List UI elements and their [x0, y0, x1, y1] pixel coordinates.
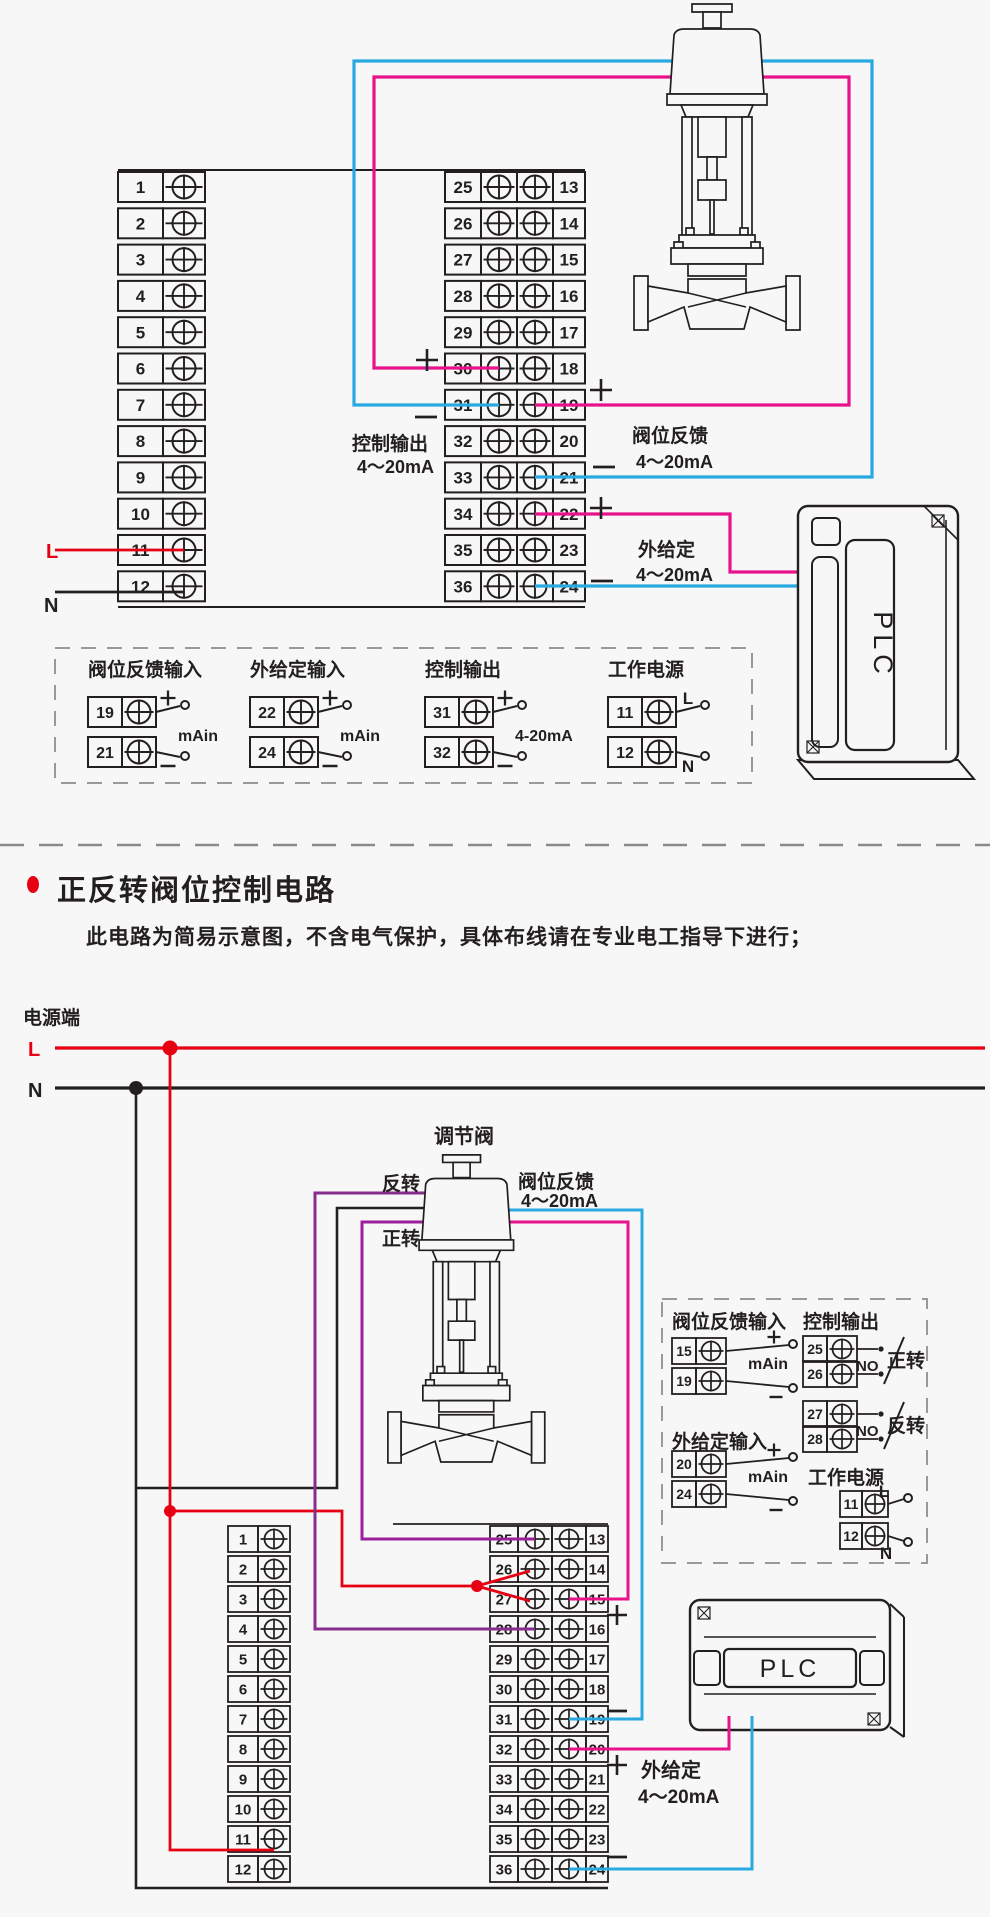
screw-terminal: [518, 1766, 552, 1792]
terminal-number: 26: [454, 214, 473, 233]
terminal-number-cell: 28: [803, 1426, 827, 1452]
terminal-number: 15: [676, 1343, 692, 1359]
terminal-number: 11: [617, 705, 634, 722]
terminal-number-cell: 33: [490, 1766, 518, 1792]
terminal-number-cell: 17: [553, 317, 585, 347]
terminal-number: 11: [235, 1831, 251, 1848]
screw-terminal: [552, 1766, 586, 1792]
label-neutral: N: [44, 595, 58, 617]
terminal-number-cell: 10: [118, 499, 163, 529]
screw-terminal: [517, 208, 553, 238]
plc-label: PLC: [868, 611, 898, 679]
wire: [726, 1458, 789, 1464]
screw-cross: [555, 1679, 584, 1700]
screw-terminal: [552, 1676, 586, 1702]
label-reverse: 反转: [382, 1172, 420, 1195]
detail-wire: [493, 752, 517, 757]
terminal-number-cell: 27: [803, 1401, 827, 1427]
detail-direction-label: 反转: [887, 1414, 925, 1437]
open-terminal-icon: [789, 1340, 797, 1348]
detail-sign: N: [682, 757, 694, 776]
screw-terminal: [459, 697, 493, 727]
screw-cross: [521, 1559, 550, 1580]
terminal-number: 32: [454, 432, 473, 451]
screw-terminal: [642, 697, 676, 727]
screw-cross: [699, 1484, 724, 1505]
terminal-number-cell: 20: [672, 1451, 696, 1477]
screw-cross: [555, 1619, 584, 1640]
panel-outline: [118, 170, 585, 607]
detail-sign: L: [879, 1482, 889, 1501]
terminal-number: 32: [433, 745, 451, 762]
terminal-number: 21: [96, 745, 114, 762]
terminal-number-cell: 34: [490, 1796, 518, 1822]
terminal-number-cell: 15: [553, 245, 585, 275]
terminal-number-cell: 19: [88, 697, 122, 727]
screw-cross: [166, 320, 203, 345]
terminal-number-cell: 30: [490, 1676, 518, 1702]
d2-wires: [55, 1041, 985, 1889]
screw-terminal: [258, 1766, 290, 1792]
terminal-number: 12: [616, 745, 634, 762]
screw-cross: [261, 1679, 288, 1700]
terminal-number: 32: [496, 1741, 513, 1758]
screw-cross: [261, 1769, 288, 1790]
screw-cross: [287, 740, 316, 765]
terminal-number-cell: 11: [608, 697, 642, 727]
terminal-number: 16: [560, 287, 579, 306]
detail-sign: L: [683, 689, 693, 708]
terminal-number-cell: 3: [228, 1586, 258, 1612]
screw-cross: [830, 1404, 855, 1425]
terminal-number: 27: [454, 251, 473, 270]
terminal-number: 10: [131, 505, 150, 524]
terminal-number: 20: [560, 432, 579, 451]
open-terminal-icon: [181, 752, 189, 760]
screw-terminal: [258, 1556, 290, 1582]
screw-cross: [555, 1829, 584, 1850]
terminal-number-cell: 20: [553, 426, 585, 456]
terminal-number-cell: 10: [228, 1796, 258, 1822]
terminal-number-cell: 32: [425, 737, 459, 767]
terminal-number: 1: [136, 178, 145, 197]
terminal-number-cell: 26: [803, 1361, 827, 1387]
terminal-number: 17: [560, 323, 579, 342]
screw-terminal: [518, 1826, 552, 1852]
screw-cross: [484, 465, 515, 490]
terminal-number: 29: [454, 323, 473, 342]
screw-terminal: [163, 317, 205, 347]
terminal-number: 12: [843, 1528, 859, 1544]
terminal-number: 9: [239, 1771, 247, 1788]
screw-cross: [484, 320, 515, 345]
plus-sign: [161, 691, 176, 706]
screw-cross: [484, 538, 515, 563]
terminal-number: 17: [589, 1651, 606, 1668]
screw-terminal: [163, 281, 205, 311]
screw-cross: [520, 320, 551, 345]
terminal-number: 4: [239, 1621, 248, 1638]
terminal-block-left: 123456789101112: [118, 172, 205, 601]
terminal-number-cell: 3: [118, 245, 163, 275]
terminal-number-cell: 9: [228, 1766, 258, 1792]
screw-cross: [484, 211, 515, 236]
screw-cross: [521, 1679, 550, 1700]
terminal-number: 4: [136, 287, 146, 306]
terminal-number: 24: [258, 745, 276, 762]
screw-terminal: [163, 462, 205, 492]
screw-cross: [484, 501, 515, 526]
d1-control-valve: [634, 4, 800, 330]
open-terminal-icon: [789, 1384, 797, 1392]
screw-cross: [261, 1589, 288, 1610]
screw-cross: [521, 1829, 550, 1850]
junction-live-branch: [471, 1580, 483, 1592]
detail-mid-label: mAin: [340, 728, 380, 745]
screw-cross: [166, 211, 203, 236]
terminal-number-cell: 12: [608, 737, 642, 767]
screw-cross: [261, 1619, 288, 1640]
terminal-number-cell: 32: [445, 426, 481, 456]
terminal-number: 35: [454, 541, 473, 560]
detail-mid-label: mAin: [748, 1356, 788, 1373]
screw-terminal: [481, 499, 517, 529]
terminal-number-cell: 4: [118, 281, 163, 311]
plc-module: PLC: [690, 1600, 904, 1737]
detail-mid-label: mAin: [178, 728, 218, 745]
terminal-number-cell: 4: [228, 1616, 258, 1642]
screw-terminal: [163, 245, 205, 275]
screw-terminal: [481, 426, 517, 456]
screw-terminal: [517, 317, 553, 347]
terminal-number-cell: 19: [672, 1368, 696, 1394]
screw-terminal: [517, 535, 553, 565]
detail-wire: [156, 706, 180, 712]
terminal-number-cell: 1: [228, 1526, 258, 1552]
terminal-block-middle: 2513261427152816291730183119322033213422…: [445, 172, 585, 601]
terminal-number-cell: 15: [672, 1338, 696, 1364]
label-ext-setpoint: 外给定: [641, 1758, 701, 1782]
plus-sign: [607, 1605, 627, 1625]
screw-cross: [166, 175, 203, 200]
terminal-number: 23: [560, 541, 579, 560]
terminal-number: 25: [454, 178, 473, 197]
screw-cross: [261, 1559, 288, 1580]
screw-cross: [166, 247, 203, 272]
terminal-number: 19: [676, 1373, 692, 1389]
terminal-number: 26: [807, 1366, 823, 1382]
terminal-number: 30: [496, 1681, 513, 1698]
wiring-manual-page: 1234567891011122513261427152816291730183…: [0, 0, 990, 1917]
terminal-number-cell: 26: [445, 208, 481, 238]
screw-cross: [520, 283, 551, 308]
terminal-number: 8: [136, 432, 145, 451]
plc-label: PLC: [760, 1655, 821, 1683]
screw-terminal: [122, 737, 156, 767]
detail-group-title: 外给定输入: [672, 1430, 767, 1453]
screw-terminal: [163, 354, 205, 384]
section-title-block: 正反转阀位控制电路 此电路为简易示意图，不含电气保护，具体布线请在专业电工指导下…: [0, 843, 990, 980]
screw-cross: [520, 175, 551, 200]
terminal-number-cell: 22: [250, 697, 284, 727]
terminal-number-cell: 12: [228, 1856, 258, 1882]
terminal-number: 23: [589, 1831, 606, 1848]
terminal-number: 1: [239, 1531, 247, 1548]
screw-terminal: [696, 1368, 726, 1394]
label-control-range: 4～20mA: [357, 457, 434, 477]
wire: [888, 1536, 904, 1541]
terminal-number: 16: [589, 1621, 606, 1638]
screw-terminal: [258, 1646, 290, 1672]
terminal-number-cell: 2: [118, 208, 163, 238]
plus-sign: [323, 691, 338, 706]
plus-sign: [590, 497, 612, 519]
screw-terminal: [258, 1796, 290, 1822]
detail-group-title: 控制输出: [803, 1310, 879, 1333]
label-feedback-range: 4～20mA: [636, 452, 713, 472]
detail-group-feedback: 阀位反馈输入1519mAin: [672, 1310, 797, 1397]
dashed-divider: [0, 843, 990, 847]
screw-cross: [645, 700, 674, 725]
screw-terminal: [517, 426, 553, 456]
screw-cross: [521, 1799, 550, 1820]
terminal-number-cell: 29: [490, 1646, 518, 1672]
label-control-output: 控制输出: [352, 432, 428, 455]
screw-terminal: [696, 1451, 726, 1477]
terminal-number: 20: [676, 1456, 692, 1472]
contact-dot: [878, 1346, 883, 1351]
label-live: L: [28, 1039, 40, 1061]
detail-mid-label: mAin: [748, 1469, 788, 1486]
terminal-number-cell: 8: [228, 1736, 258, 1762]
screw-cross: [521, 1709, 550, 1730]
label-setpoint-range: 4～20mA: [638, 1787, 720, 1808]
screw-terminal: [258, 1706, 290, 1732]
d1-terminal-blocks: 1234567891011122513261427152816291730183…: [118, 170, 585, 607]
detail-group: 外给定输入2224mAin: [250, 658, 380, 767]
terminal-number: 28: [807, 1431, 823, 1447]
terminal-number-cell: 31: [425, 697, 459, 727]
screw-terminal: [258, 1676, 290, 1702]
label-forward: 正转: [382, 1227, 420, 1250]
section-title-row: 正反转阀位控制电路: [57, 867, 336, 909]
terminal-number-cell: 16: [553, 281, 585, 311]
screw-cross: [261, 1529, 288, 1550]
label-setpoint-range: 4～20mA: [636, 565, 713, 585]
d2-terminal-detail-box: 阀位反馈输入1519mAin外给定输入2024mAin控制输出2526NO正转2…: [662, 1299, 927, 1563]
detail-group-title: 控制输出: [425, 658, 501, 681]
terminal-number: 6: [239, 1681, 247, 1698]
screw-cross: [166, 429, 203, 454]
screw-terminal: [518, 1706, 552, 1732]
screw-terminal: [481, 281, 517, 311]
screw-cross: [521, 1769, 550, 1790]
terminal-number-cell: 21: [88, 737, 122, 767]
screw-cross: [520, 211, 551, 236]
screw-cross: [261, 1739, 288, 1760]
screw-terminal: [163, 172, 205, 202]
detail-direction-label: 正转: [887, 1349, 925, 1372]
terminal-number: 28: [454, 287, 473, 306]
screw-cross: [555, 1529, 584, 1550]
section-title: 正反转阀位控制电路: [57, 875, 336, 907]
screw-cross: [462, 740, 491, 765]
screw-cross: [166, 283, 203, 308]
screw-cross: [484, 247, 515, 272]
detail-no-label: NO: [856, 1423, 879, 1440]
terminal-number-cell: 28: [445, 281, 481, 311]
screw-cross: [699, 1454, 724, 1475]
terminal-number-cell: 36: [490, 1856, 518, 1882]
screw-terminal: [517, 245, 553, 275]
screw-terminal: [696, 1481, 726, 1507]
terminal-number: 34: [496, 1801, 513, 1818]
screw-cross: [521, 1859, 550, 1880]
screw-cross: [261, 1829, 288, 1850]
screw-terminal: [696, 1338, 726, 1364]
terminal-number: 18: [560, 360, 579, 379]
terminal-number-cell: 32: [490, 1736, 518, 1762]
terminal-number: 14: [589, 1561, 606, 1578]
terminal-number-cell: 21: [586, 1766, 608, 1792]
screw-terminal: [827, 1361, 857, 1387]
open-terminal-icon: [343, 752, 351, 760]
junction-neutral-top: [129, 1081, 143, 1095]
screw-terminal: [481, 535, 517, 565]
terminal-number: 12: [131, 577, 150, 596]
d2-labels: 电源端LN调节阀反转正转阀位反馈4～20mA外给定4～20mA: [23, 1006, 720, 1857]
screw-cross: [125, 700, 154, 725]
terminal-number: 13: [589, 1531, 606, 1548]
screw-cross: [166, 574, 203, 599]
screw-terminal: [258, 1736, 290, 1762]
screw-cross: [699, 1371, 724, 1392]
terminal-number-cell: 29: [445, 317, 481, 347]
terminal-number-cell: 18: [553, 354, 585, 384]
terminal-number: 33: [496, 1771, 513, 1788]
plus-sign: [590, 379, 612, 401]
terminal-number-cell: 13: [586, 1526, 608, 1552]
contact-dot: [878, 1436, 883, 1441]
terminal-number-cell: 5: [118, 317, 163, 347]
detail-sign: N: [880, 1544, 892, 1563]
open-terminal-icon: [789, 1453, 797, 1461]
terminal-number: 34: [454, 505, 473, 524]
screw-terminal: [258, 1826, 290, 1852]
screw-cross: [555, 1769, 584, 1790]
screw-cross: [830, 1429, 855, 1450]
plus-sign: [768, 1444, 781, 1457]
label-feedback-range: 4～20mA: [521, 1191, 598, 1211]
terminal-number: 9: [136, 469, 145, 488]
terminal-number-cell: 8: [118, 426, 163, 456]
terminal-number-cell: 23: [586, 1826, 608, 1852]
screw-terminal: [163, 208, 205, 238]
terminal-number-cell: 14: [586, 1556, 608, 1582]
diagram-forward-reverse-wiring: 1234567891011122513261427152816291730183…: [0, 980, 990, 1917]
screw-terminal: [552, 1646, 586, 1672]
screw-terminal: [481, 208, 517, 238]
terminal-number: 13: [560, 178, 579, 197]
screw-terminal: [481, 172, 517, 202]
wire: [726, 1381, 789, 1387]
junction-live-mid: [164, 1505, 176, 1517]
terminal-number: 25: [807, 1341, 823, 1357]
detail-group: 工作电源11L12N: [608, 658, 709, 776]
detail-mid-label: 4-20mA: [515, 728, 573, 745]
screw-cross: [830, 1364, 855, 1385]
screw-cross: [520, 538, 551, 563]
screw-terminal: [552, 1826, 586, 1852]
screw-terminal: [258, 1616, 290, 1642]
wire: [726, 1494, 789, 1500]
terminal-number: 36: [454, 577, 473, 596]
label-power-terminal: 电源端: [23, 1006, 80, 1029]
terminal-number: 29: [496, 1651, 513, 1668]
terminal-number-cell: 12: [840, 1523, 862, 1549]
terminal-number-cell: 24: [672, 1481, 696, 1507]
terminal-number: 7: [239, 1711, 247, 1728]
screw-terminal: [518, 1676, 552, 1702]
terminal-number-cell: 11: [840, 1491, 862, 1517]
screw-cross: [555, 1799, 584, 1820]
bullet-icon: [27, 876, 39, 893]
screw-terminal: [517, 172, 553, 202]
detail-group-title: 工作电源: [808, 1466, 884, 1489]
diagram-single-loop-wiring: 1234567891011122513261427152816291730183…: [0, 0, 990, 843]
detail-group-control: 控制输出2526NO正转2728NO反转: [803, 1310, 925, 1452]
label-neutral: N: [28, 1080, 42, 1102]
terminal-number-cell: 7: [118, 390, 163, 420]
terminal-number-cell: 13: [553, 172, 585, 202]
terminal-number: 35: [496, 1831, 513, 1848]
screw-cross: [484, 175, 515, 200]
detail-group-power: 工作电源1112LN: [808, 1466, 912, 1563]
wire: [888, 1499, 904, 1504]
detail-no-label: NO: [856, 1358, 879, 1375]
d1-terminal-detail-box: 阀位反馈输入1921mAin外给定输入2224mAin控制输出31324-20m…: [55, 648, 752, 783]
d2-terminal-blocks: 1234567891011122513261427152816291730183…: [228, 1524, 608, 1882]
plus-sign: [607, 1755, 627, 1775]
terminal-block-left: 123456789101112: [228, 1526, 290, 1882]
terminal-number: 5: [136, 323, 145, 342]
screw-terminal: [258, 1856, 290, 1882]
screw-cross: [166, 465, 203, 490]
terminal-number: 14: [560, 214, 579, 233]
terminal-number: 11: [844, 1496, 859, 1512]
detail-wire: [493, 706, 517, 712]
label-valve-feedback: 阀位反馈: [632, 424, 708, 447]
terminal-number-cell: 11: [228, 1826, 258, 1852]
open-terminal-icon: [789, 1497, 797, 1505]
label-ext-setpoint: 外给定: [638, 538, 695, 561]
screw-terminal: [481, 462, 517, 492]
screw-terminal: [827, 1336, 857, 1362]
terminal-number-cell: 34: [445, 499, 481, 529]
screw-cross: [555, 1559, 584, 1580]
screw-terminal: [518, 1556, 552, 1582]
terminal-number: 12: [235, 1861, 252, 1878]
screw-terminal: [481, 245, 517, 275]
detail-group-title: 工作电源: [608, 658, 684, 681]
terminal-number: 19: [96, 705, 114, 722]
terminal-number-cell: 6: [228, 1676, 258, 1702]
screw-terminal: [552, 1556, 586, 1582]
terminal-number: 7: [136, 396, 145, 415]
screw-terminal: [552, 1616, 586, 1642]
screw-terminal: [258, 1526, 290, 1552]
open-terminal-icon: [343, 701, 351, 709]
